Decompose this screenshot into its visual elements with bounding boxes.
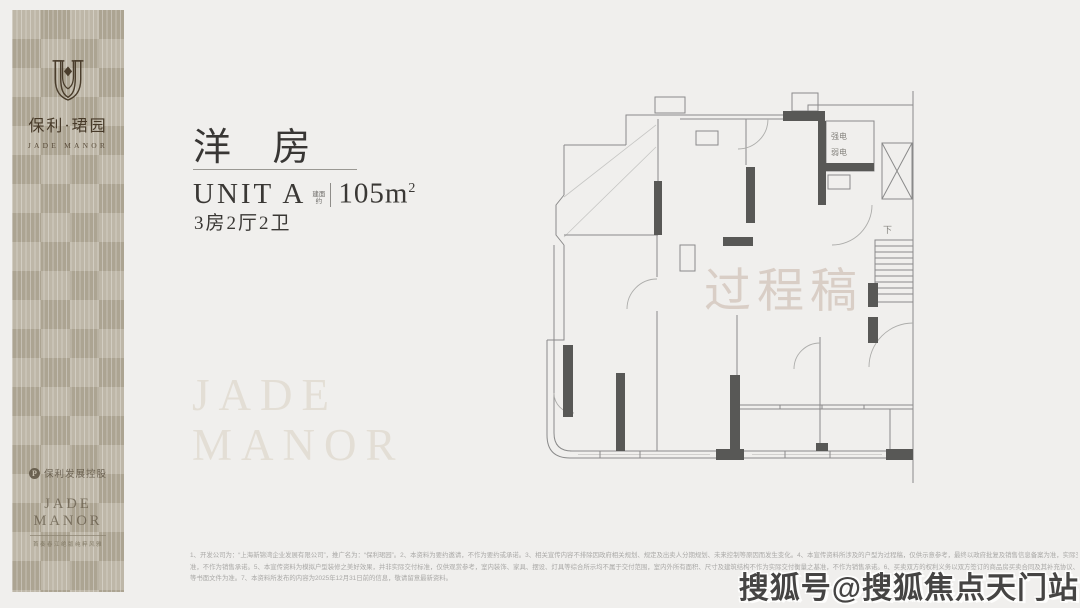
shaft-label-weak-electric: 弱电 — [831, 147, 847, 157]
area-prefix-bottom: 约 — [316, 198, 323, 206]
area-divider — [330, 183, 331, 207]
area-value: 105m2 — [338, 174, 416, 209]
brand-name-cn: 保利·珺园 — [12, 112, 124, 136]
panel-footer: P 保利发展控股 JADE MANOR 首奏春江绝版纯粹风雅 — [12, 466, 124, 548]
area-prefix: 建面 约 — [312, 191, 325, 206]
large-watermark: JADE MANOR — [192, 370, 405, 470]
brand-side-panel: 保利·珺园 JADE MANOR P 保利发展控股 JADE MANOR 首奏春… — [12, 10, 124, 592]
page-title: 洋 房 — [193, 116, 327, 171]
watermark-line2: MANOR — [192, 420, 405, 470]
shaft-label-strong-electric: 强电 — [831, 131, 847, 141]
unit-info-row: UNIT A 建面 约 105m2 — [193, 174, 416, 209]
unit-label: UNIT A — [193, 179, 306, 209]
brand-name-en: JADE MANOR — [12, 141, 124, 150]
footer-tagline: 首奏春江绝版纯粹风雅 — [12, 540, 124, 548]
brand-lockup: 保利·珺园 JADE MANOR — [12, 58, 124, 150]
title-divider — [193, 169, 357, 170]
developer-row: P 保利发展控股 — [12, 466, 124, 480]
sohu-watermark: 搜狐号@搜狐焦点天门站 — [739, 563, 1079, 607]
watermark-line1: JADE — [192, 370, 405, 420]
footer-divider — [30, 535, 106, 536]
disclaimer-line-1: 1、开发公司为：“上海新锦湾企业发展有限公司”，推广名为：“保利珺园”。2、本资… — [190, 550, 1078, 562]
stairs-down-label: 下 — [883, 225, 892, 235]
area-superscript: 2 — [408, 181, 416, 196]
layout-spec: 3房2厅2卫 — [194, 208, 292, 235]
developer-name: 保利发展控股 — [44, 466, 107, 480]
draft-stamp-watermark: 过程稿 — [704, 252, 863, 321]
poly-logo-icon: P — [29, 468, 40, 479]
jade-manor-emblem-icon — [48, 58, 88, 102]
footer-brand-en: JADE MANOR — [12, 496, 124, 530]
